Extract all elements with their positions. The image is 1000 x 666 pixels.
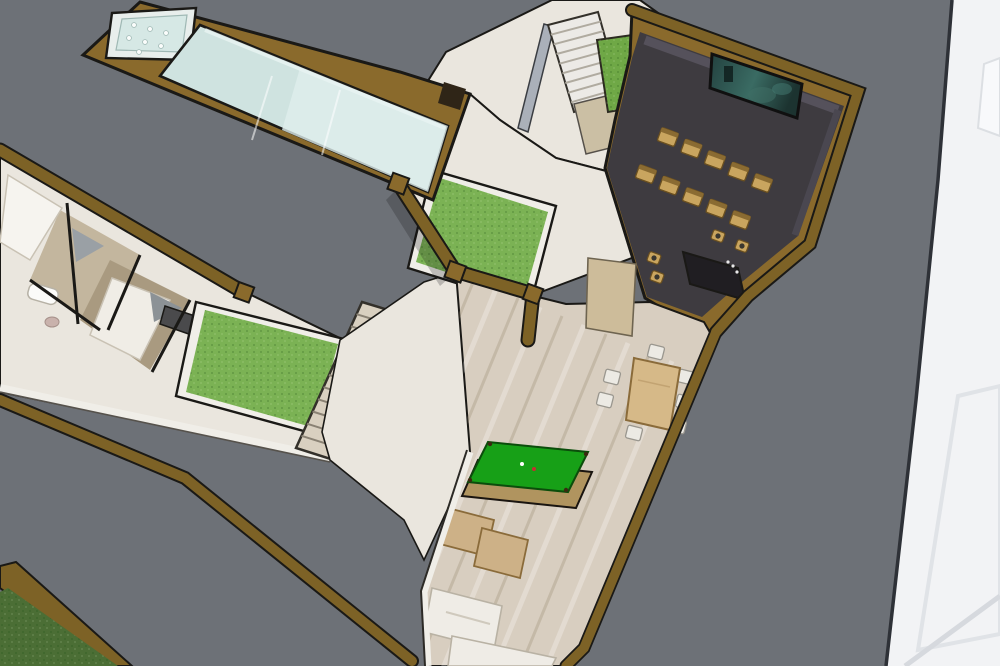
jacuzzi-jet — [164, 31, 169, 36]
dining-chair[interactable] — [603, 369, 621, 385]
dining-chair[interactable] — [647, 344, 665, 360]
jacuzzi-jet — [127, 36, 132, 41]
jacuzzi-jet — [143, 40, 148, 45]
model-viewport[interactable] — [0, 0, 1000, 666]
jacuzzi-jet — [159, 44, 164, 49]
dining-chair[interactable] — [596, 392, 614, 408]
bottle — [726, 260, 729, 263]
jacuzzi-jet — [148, 27, 153, 32]
hall-cabinet — [586, 258, 636, 336]
bottle — [731, 264, 734, 267]
dining-table[interactable] — [626, 358, 680, 430]
dining-chair[interactable] — [625, 425, 643, 441]
jacuzzi-jet — [137, 50, 142, 55]
bottle — [735, 270, 738, 273]
jacuzzi-jet — [132, 23, 137, 28]
